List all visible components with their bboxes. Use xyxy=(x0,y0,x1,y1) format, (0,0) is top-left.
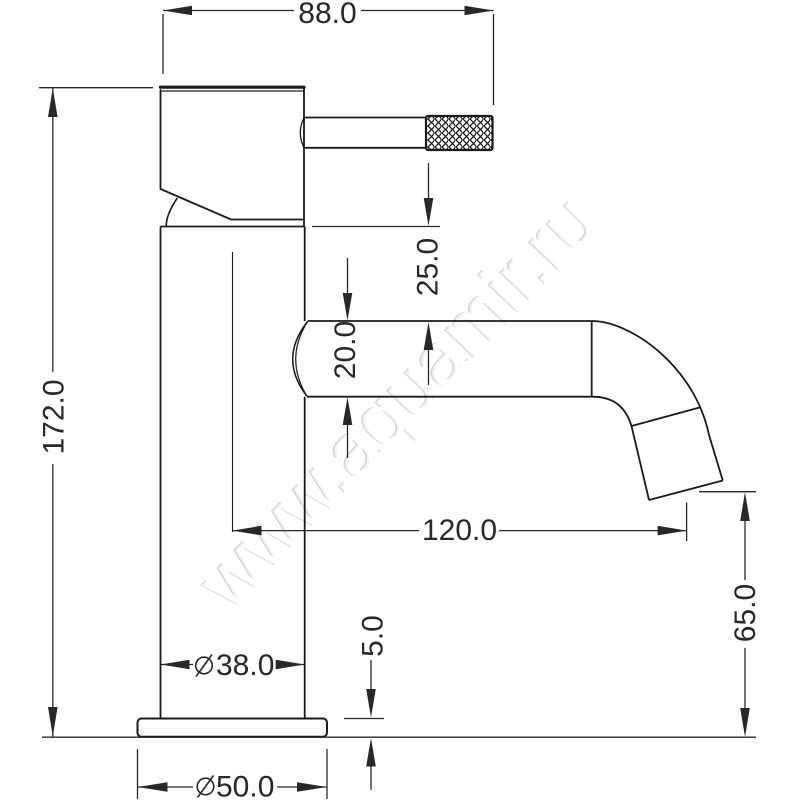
svg-text:120.0: 120.0 xyxy=(422,514,497,547)
svg-text:88.0: 88.0 xyxy=(298,0,356,30)
svg-text:38.0: 38.0 xyxy=(216,649,274,682)
svg-text:5.0: 5.0 xyxy=(357,615,390,657)
svg-text:20.0: 20.0 xyxy=(329,321,362,379)
svg-text:50.0: 50.0 xyxy=(216,771,274,800)
svg-text:172.0: 172.0 xyxy=(37,379,70,454)
svg-text:65.0: 65.0 xyxy=(729,584,762,642)
svg-text:25.0: 25.0 xyxy=(412,238,445,296)
